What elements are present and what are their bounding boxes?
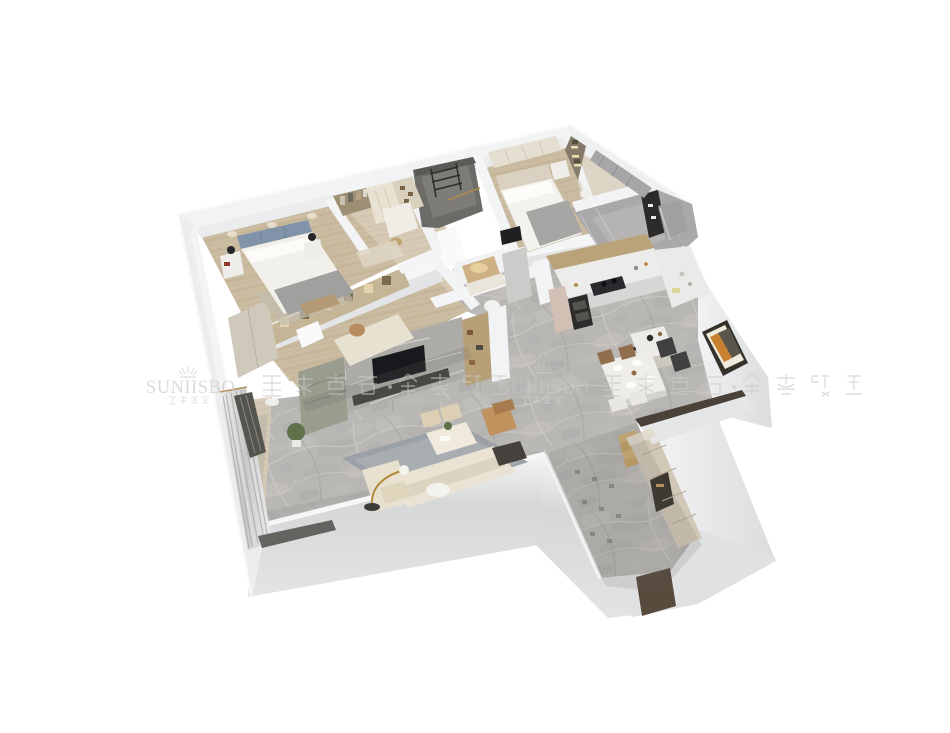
svg-text:SUNIISBO: SUNIISBO bbox=[146, 378, 235, 398]
svg-text:SUNIISBO: SUNIISBO bbox=[500, 378, 589, 398]
